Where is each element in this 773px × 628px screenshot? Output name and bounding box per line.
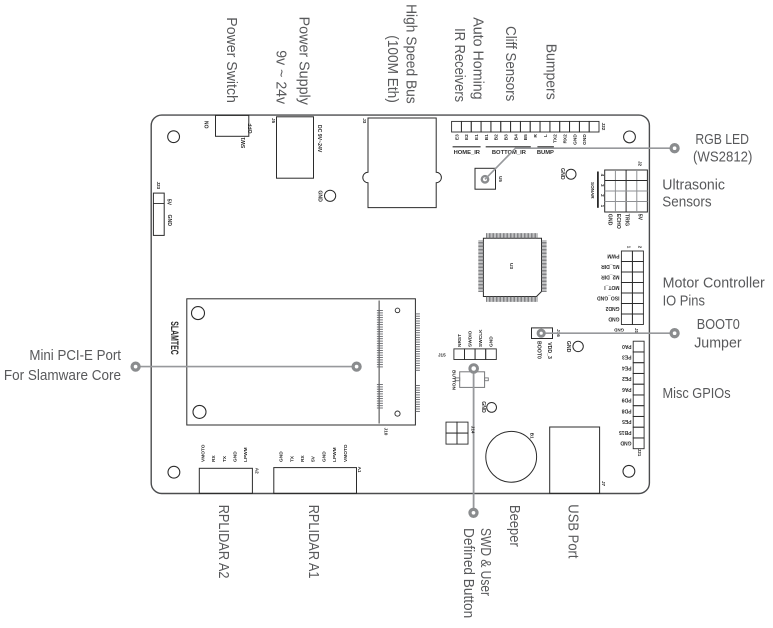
svg-text:For Slamware Core: For Slamware Core [4, 368, 121, 384]
svg-text:Power Switch: Power Switch [223, 17, 239, 103]
svg-text:PA6: PA6 [622, 386, 632, 392]
svg-text:RX: RX [211, 455, 217, 462]
svg-text:Sensors: Sensors [662, 195, 711, 211]
svg-text:DC 9V~24V: DC 9V~24V [316, 125, 322, 153]
svg-text:GND: GND [565, 341, 571, 353]
svg-text:BOOT0: BOOT0 [697, 317, 740, 333]
svg-text:R: R [533, 134, 539, 138]
svg-text:2: 2 [600, 194, 605, 197]
svg-text:RGB LED: RGB LED [695, 132, 749, 148]
svg-text:GND: GND [317, 190, 323, 202]
svg-text:IO Pins: IO Pins [663, 293, 705, 309]
svg-text:VMOTO: VMOTO [201, 444, 207, 462]
svg-text:B5: B5 [523, 134, 529, 140]
svg-text:5V: 5V [310, 455, 316, 462]
svg-text:3: 3 [600, 184, 605, 187]
svg-text:GND: GND [614, 328, 624, 333]
svg-text:Cliff Sensors: Cliff Sensors [502, 26, 518, 101]
svg-text:BUTTON: BUTTON [451, 370, 457, 390]
svg-text:1: 1 [600, 205, 605, 208]
svg-text:GND: GND [606, 214, 612, 226]
svg-text:VMOTO: VMOTO [343, 444, 349, 462]
svg-text:B2: B2 [494, 134, 500, 140]
svg-text:SLAMTEC: SLAMTEC [168, 321, 180, 355]
svg-text:B3: B3 [504, 134, 510, 140]
svg-text:HOME_IR: HOME_IR [454, 150, 481, 156]
svg-text:TX: TX [222, 455, 228, 462]
svg-text:U3: U3 [508, 263, 514, 269]
svg-text:(WS2812): (WS2812) [693, 149, 752, 165]
svg-text:NRST: NRST [457, 334, 463, 347]
svg-text:ON: ON [204, 121, 210, 129]
svg-text:B1: B1 [484, 134, 490, 140]
svg-text:SONAR: SONAR [590, 182, 595, 199]
svg-text:Beeper: Beeper [506, 505, 522, 547]
svg-text:GND: GND [489, 336, 495, 347]
svg-text:GND: GND [321, 451, 327, 462]
svg-text:LPWM: LPWM [332, 447, 338, 462]
svg-text:5V: 5V [165, 199, 171, 206]
svg-text:L: L [543, 134, 549, 137]
svg-text:Misc GPIOs: Misc GPIOs [663, 386, 731, 402]
svg-text:OFF: OFF [248, 124, 254, 134]
svg-text:Auto Homing: Auto Homing [469, 17, 485, 99]
svg-text:RX2: RX2 [562, 134, 568, 144]
svg-text:J2: J2 [638, 161, 643, 167]
svg-text:M1_DIR: M1_DIR [601, 263, 620, 269]
svg-text:A1: A1 [357, 467, 362, 473]
svg-text:RX: RX [300, 455, 306, 462]
svg-text:B4: B4 [513, 134, 519, 140]
svg-text:GND: GND [232, 451, 238, 462]
svg-text:GND2: GND2 [605, 305, 619, 311]
svg-text:MOT_I: MOT_I [604, 284, 620, 290]
svg-text:J23: J23 [156, 182, 161, 190]
svg-text:Jumper: Jumper [694, 335, 742, 351]
svg-text:Motor Controller: Motor Controller [663, 276, 765, 292]
svg-text:USB Port: USB Port [564, 504, 580, 558]
svg-text:9v ~ 24v: 9v ~ 24v [273, 50, 289, 105]
svg-text:J22: J22 [601, 123, 606, 131]
svg-text:PE5: PE5 [622, 418, 632, 424]
svg-text:J21: J21 [637, 449, 642, 457]
svg-text:PE4: PE4 [622, 365, 632, 371]
svg-text:5V: 5V [637, 214, 643, 221]
svg-text:J7: J7 [601, 481, 606, 487]
svg-text:TX: TX [289, 455, 295, 462]
svg-text:SW1: SW1 [241, 137, 247, 148]
svg-text:Power Supply: Power Supply [296, 17, 312, 106]
svg-text:PB15: PB15 [619, 429, 632, 435]
svg-text:U5: U5 [498, 176, 503, 182]
svg-text:PWM: PWM [607, 253, 619, 259]
svg-text:GND: GND [166, 215, 172, 227]
svg-text:High Speed Bus: High Speed Bus [403, 4, 419, 104]
svg-text:IR Receivers: IR Receivers [451, 28, 467, 102]
svg-text:SWD & User: SWD & User [477, 528, 493, 596]
svg-text:BUMP: BUMP [537, 150, 554, 156]
svg-text:SWDIO: SWDIO [468, 330, 474, 347]
svg-text:Ultrasonic: Ultrasonic [662, 178, 725, 194]
svg-text:E3: E3 [454, 134, 460, 140]
svg-text:PA0: PA0 [622, 343, 632, 349]
svg-text:GND: GND [572, 134, 578, 145]
svg-text:PE2: PE2 [622, 375, 632, 381]
svg-text:PD9: PD9 [622, 397, 632, 403]
svg-text:PD8: PD8 [622, 408, 632, 414]
svg-text:E2: E2 [464, 134, 470, 140]
svg-text:GND: GND [582, 134, 588, 145]
svg-text:RPLIDAR A2: RPLIDAR A2 [215, 505, 231, 579]
svg-text:J3: J3 [362, 118, 367, 124]
svg-text:GND: GND [620, 440, 632, 446]
svg-text:GND: GND [559, 168, 565, 180]
svg-text:GND: GND [608, 316, 620, 322]
svg-text:J10: J10 [384, 428, 389, 436]
svg-text:PE3: PE3 [622, 354, 632, 360]
svg-text:M2_DIR: M2_DIR [601, 274, 620, 280]
svg-text:RPLIDAR A1: RPLIDAR A1 [305, 505, 321, 579]
svg-text:(100M Eth): (100M Eth) [384, 35, 400, 103]
svg-text:ECHO: ECHO [615, 214, 621, 229]
svg-text:Bumpers: Bumpers [543, 44, 559, 100]
svg-text:4: 4 [600, 174, 605, 177]
svg-text:VDD_3: VDD_3 [546, 342, 552, 359]
svg-text:Mini PCI-E Port: Mini PCI-E Port [29, 348, 121, 364]
svg-text:J5: J5 [271, 118, 276, 124]
svg-text:B1: B1 [530, 433, 535, 439]
svg-text:A2: A2 [255, 468, 260, 474]
svg-text:E1: E1 [474, 134, 480, 140]
svg-text:TX2: TX2 [553, 134, 559, 143]
svg-text:J14: J14 [470, 426, 475, 434]
svg-text:ISO_GND: ISO_GND [597, 295, 620, 301]
svg-text:SWCLK: SWCLK [478, 329, 484, 347]
svg-text:GND: GND [480, 401, 486, 413]
svg-text:Defined Button: Defined Button [460, 528, 476, 618]
svg-text:BOOT0: BOOT0 [536, 341, 542, 359]
svg-text:GND: GND [279, 451, 285, 462]
svg-text:TRIG: TRIG [623, 214, 629, 226]
svg-text:LPWM: LPWM [243, 447, 249, 462]
svg-text:J15: J15 [438, 353, 446, 358]
